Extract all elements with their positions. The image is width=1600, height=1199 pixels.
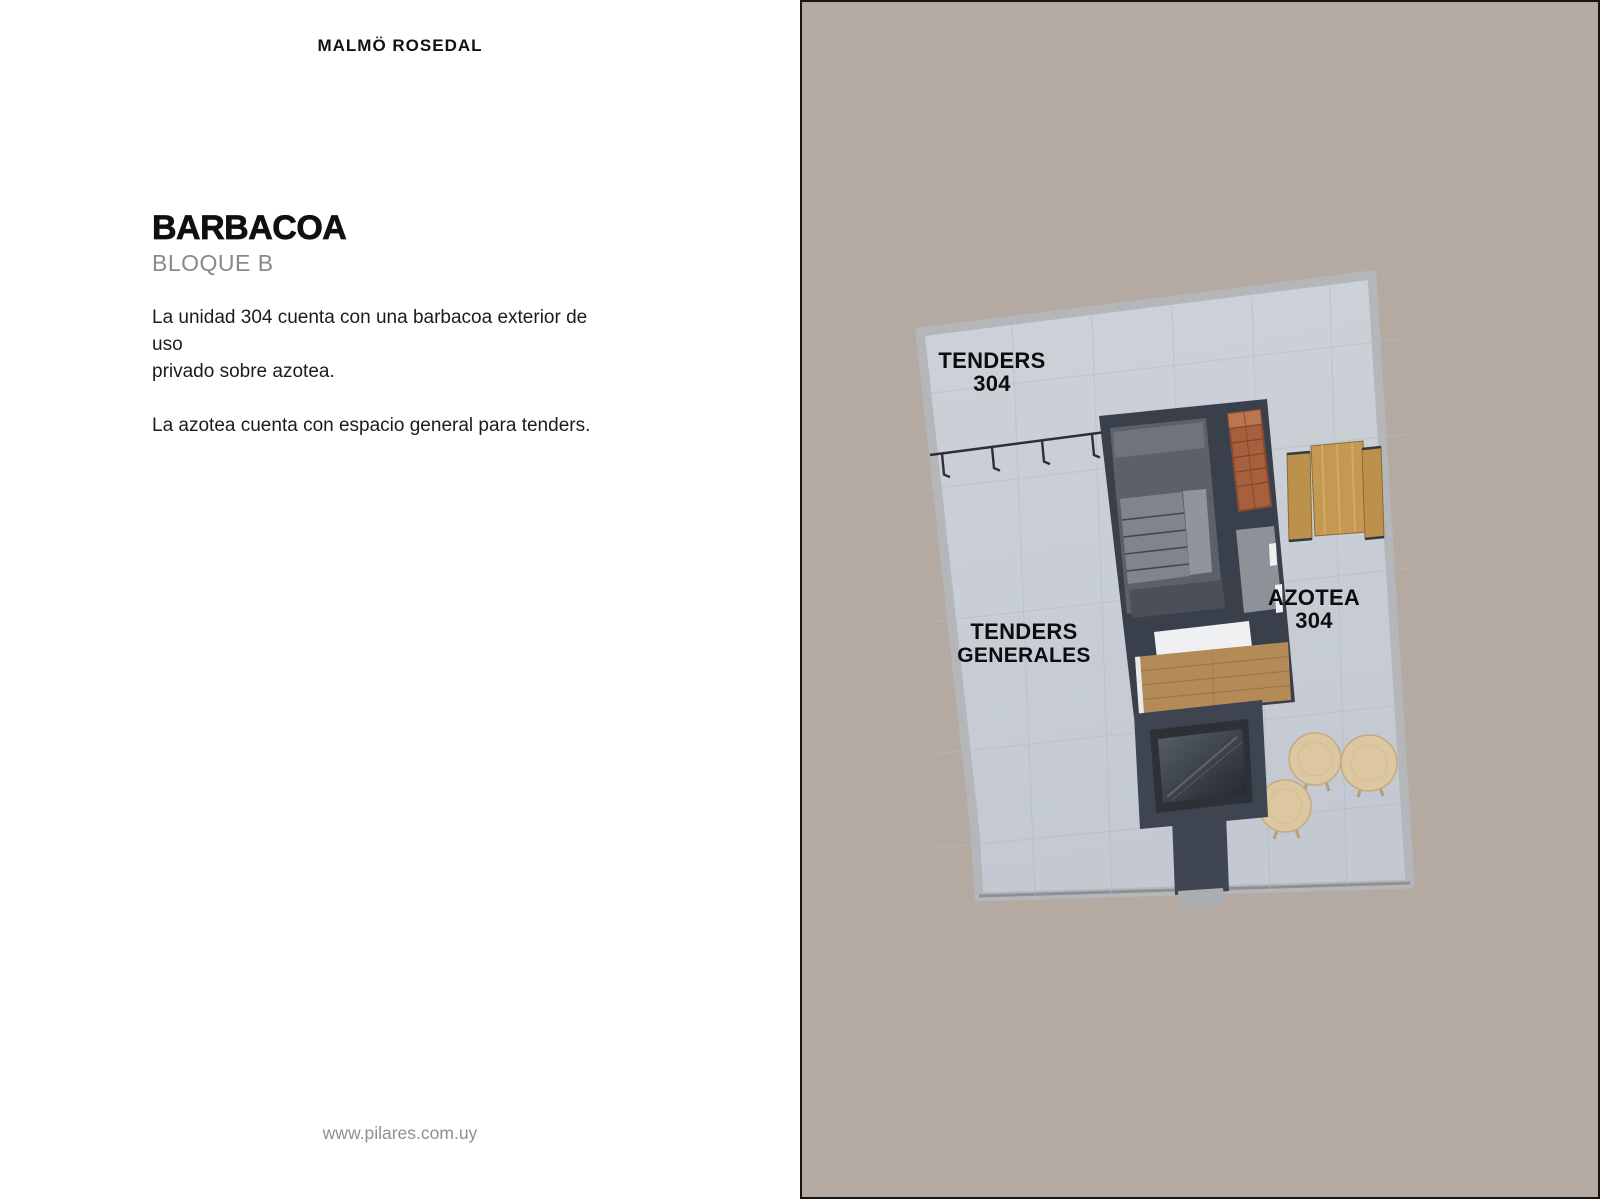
- page-subtitle: BLOQUE B: [152, 250, 622, 276]
- left-panel: MALMÖ ROSEDAL BARBACOA BLOQUE B La unida…: [0, 0, 800, 1199]
- paragraph-2: La azotea cuenta con espacio general par…: [152, 412, 622, 439]
- brand-header: MALMÖ ROSEDAL: [0, 36, 800, 56]
- staircase: [1110, 418, 1225, 618]
- text-content: BARBACOA BLOQUE B La unidad 304 cuenta c…: [152, 210, 622, 439]
- footer-url: www.pilares.com.uy: [0, 1123, 800, 1144]
- paragraph-1: La unidad 304 cuenta con una barbacoa ex…: [152, 304, 622, 385]
- label-tenders-304-line1: TENDERS: [938, 348, 1045, 373]
- label-tenders-304-line2: 304: [973, 371, 1011, 396]
- skylight: [1134, 700, 1268, 829]
- rooftop-plan: TENDERS 304 TENDERS GENERALES AZOTEA 304: [802, 2, 1598, 1197]
- brochure-page: MALMÖ ROSEDAL BARBACOA BLOQUE B La unida…: [0, 0, 1600, 1199]
- paragraph-1-line-1: La unidad 304 cuenta con una barbacoa ex…: [152, 307, 587, 355]
- label-tenders-generales-line1: TENDERS: [970, 619, 1077, 644]
- label-azotea-304-line1: AZOTEA: [1268, 585, 1360, 610]
- plan-panel: TENDERS 304 TENDERS GENERALES AZOTEA 304: [800, 0, 1600, 1199]
- page-title: BARBACOA: [152, 210, 622, 246]
- paragraph-1-line-2: privado sobre azotea.: [152, 361, 335, 382]
- label-azotea-304-line2: 304: [1295, 608, 1333, 633]
- walkway: [1172, 813, 1229, 907]
- picnic-table: [1287, 441, 1384, 541]
- label-tenders-generales-line2: GENERALES: [957, 644, 1090, 667]
